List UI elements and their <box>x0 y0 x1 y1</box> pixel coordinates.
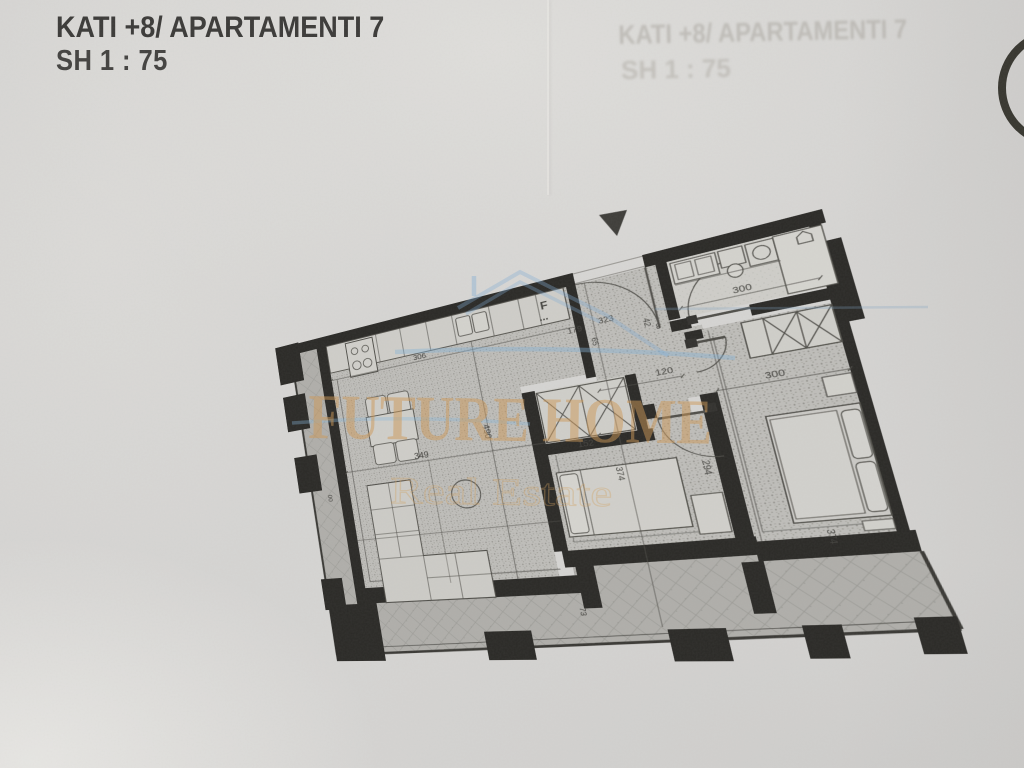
svg-text:73: 73 <box>576 607 588 616</box>
svg-text:00: 00 <box>326 494 334 502</box>
